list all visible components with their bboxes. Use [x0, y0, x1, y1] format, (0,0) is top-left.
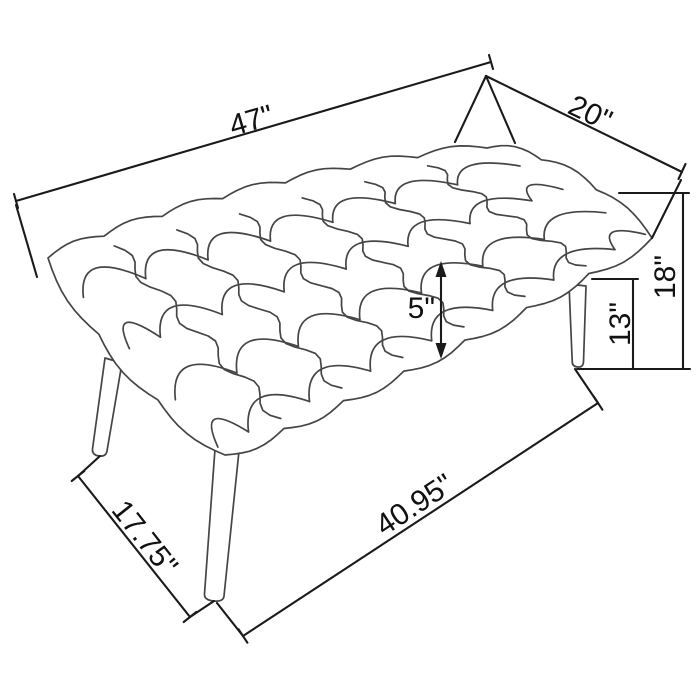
front-left-leg [92, 358, 122, 456]
dim-extension [190, 601, 214, 617]
dim-extension [455, 76, 486, 142]
label-leg-clearance: 13" [604, 302, 637, 346]
diagram-page: 47" 20" 18" 13" 5" 17.75" 40.95" [0, 0, 700, 700]
dim-extension [78, 456, 100, 476]
bench-seat-outline [48, 146, 652, 455]
label-bottom-length: 40.95" [370, 468, 460, 543]
dim-extension [652, 180, 681, 238]
dim-extension [16, 205, 37, 277]
back-right-leg [569, 284, 586, 367]
label-bottom-depth: 17.75" [105, 494, 184, 582]
label-cushion-thickness: 5" [408, 292, 435, 325]
dim-extension [486, 76, 515, 143]
label-top-depth: 20" [563, 89, 617, 138]
dim-extension [217, 603, 243, 636]
label-overall-height: 18" [649, 255, 682, 299]
bench-dimension-diagram: 47" 20" 18" 13" 5" 17.75" 40.95" [0, 0, 700, 700]
front-center-leg [204, 449, 239, 601]
label-top-length: 47" [226, 99, 277, 143]
dim-extension [575, 369, 598, 403]
